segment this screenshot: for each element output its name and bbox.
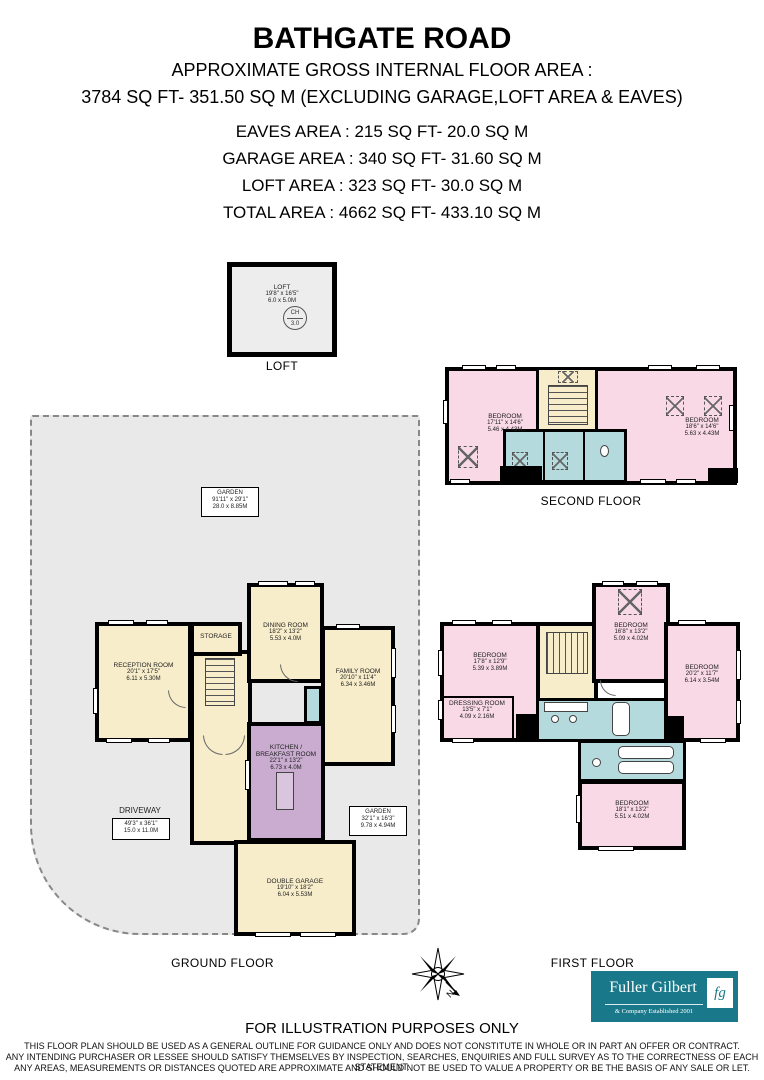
area-dims-imperial: 91'11" x 29'1" (202, 497, 258, 504)
room-dims-imperial: 13'5" x 7'1" (442, 707, 512, 714)
room-dims-metric: 6.11 x 5.30M (95, 676, 192, 683)
gf-garage-label: DOUBLE GARAGE 19'10" x 18'2" 6.04 x 5.53… (234, 878, 356, 899)
room-dims-metric: 5.46 x 4.43M (450, 427, 560, 434)
room-dims-imperial: 18'2" x 13'2" (247, 629, 324, 636)
sf-bath-partition (543, 431, 545, 481)
window (148, 738, 170, 743)
footer-heading: FOR ILLUSTRATION PURPOSES ONLY (0, 1020, 764, 1037)
window (336, 624, 360, 629)
area-dims-metric: 9.78 x 4.94M (350, 823, 406, 830)
room-name: KITCHEN / (247, 744, 325, 751)
window (678, 620, 706, 625)
floorplan-page: BATHGATE ROAD APPROXIMATE GROSS INTERNAL… (0, 0, 764, 1080)
area-dims-imperial: 49'3" x 36'1" (113, 821, 169, 828)
window (452, 620, 476, 625)
header-loft-area: LOFT AREA : 323 SQ FT- 30.0 SQ M (0, 176, 764, 196)
room-dims-metric: 5.09 x 4.02M (592, 636, 670, 643)
window (146, 620, 168, 625)
ch-value: 3.0 (284, 319, 306, 329)
room-dims-imperial: 18'1" x 13'2" (578, 807, 686, 814)
logo-monogram: fg (707, 978, 733, 1008)
footer-disclaimer-line: ANY AREAS, MEASUREMENTS OR DISTANCES QUO… (0, 1063, 764, 1073)
room-dims-metric: 5.63 x 4.43M (652, 431, 752, 438)
header-total-area: TOTAL AREA : 4662 SQ FT- 433.10 SQ M (0, 203, 764, 223)
room-name: BEDROOM (450, 413, 560, 420)
room-name: DOUBLE GARAGE (234, 878, 356, 885)
logo-divider (605, 1004, 703, 1005)
garage-door (255, 932, 291, 937)
room-name: LOFT (227, 284, 337, 291)
skylight-icon (666, 396, 684, 416)
ff-bedroom-left-label: BEDROOM 17'8" x 12'9" 5.39 x 3.89M (440, 652, 540, 673)
room-name: BEDROOM (440, 652, 540, 659)
room-name: BEDROOM (592, 622, 670, 629)
driveway-dims-label: 49'3" x 36'1" 15.0 x 11.0M (112, 818, 170, 840)
gf-reception-label: RECEPTION ROOM 20'1" x 17'5" 6.11 x 5.30… (95, 662, 192, 683)
window (258, 581, 288, 586)
header-subtitle: APPROXIMATE GROSS INTERNAL FLOOR AREA : (0, 60, 764, 81)
room-name: FAMILY ROOM (321, 668, 395, 675)
room-name: RECEPTION ROOM (95, 662, 192, 669)
window (462, 365, 486, 370)
logo-name: Fuller Gilbert (597, 979, 709, 997)
ground-floor-caption: GROUND FLOOR (150, 956, 295, 970)
loft-caption: LOFT (227, 359, 337, 373)
window (391, 648, 396, 678)
room-dims-imperial: 20'2" x 11'7" (664, 671, 740, 678)
ff-eaves-block (666, 716, 684, 738)
gf-family-label: FAMILY ROOM 20'10" x 11'4" 6.34 x 3.46M (321, 668, 395, 689)
toilet-icon (600, 445, 609, 457)
sf-bedroom-left-label: BEDROOM 17'11" x 14'6" 5.46 x 4.43M (450, 413, 560, 434)
room-name: DRESSING ROOM (442, 700, 512, 707)
window (598, 846, 634, 851)
window (391, 705, 396, 733)
window (492, 620, 512, 625)
window (700, 738, 726, 743)
room-dims-imperial: 17'8" x 12'9" (440, 659, 540, 666)
driveway-name: DRIVEWAY (100, 806, 180, 815)
window (676, 479, 696, 484)
loft-room-label: LOFT 19'8" x 16'5" 6.0 x 5.0M (227, 284, 337, 305)
sf-bedroom-right-label: BEDROOM 18'6" x 14'6" 5.63 x 4.43M (652, 417, 752, 438)
area-dims-metric: 28.0 x 8.85M (202, 504, 258, 511)
window (443, 400, 448, 424)
window (93, 688, 98, 714)
header-garage-area: GARAGE AREA : 340 SQ FT- 31.60 SQ M (0, 149, 764, 169)
room-name: DINING ROOM (247, 622, 324, 629)
window (696, 365, 720, 370)
gf-wc (304, 686, 322, 724)
toilet-icon (592, 758, 601, 767)
gf-kitchen-label: KITCHEN / BREAKFAST ROOM 22'1" x 13'2" 6… (247, 744, 325, 772)
room-dims-metric: 5.53 x 4.0M (247, 636, 324, 643)
room-dims-metric: 6.04 x 5.53M (234, 892, 356, 899)
room-name: BEDROOM (652, 417, 752, 424)
bathtub-icon (618, 761, 674, 774)
window (450, 479, 470, 484)
door-arc (600, 680, 616, 696)
sink-icon (551, 715, 559, 723)
room-dims-metric: 4.09 x 2.16M (442, 714, 512, 721)
skylight-icon (704, 396, 722, 416)
gf-storage-label: STORAGE (192, 633, 240, 640)
window (295, 581, 315, 586)
window (729, 405, 734, 431)
room-dims-metric: 5.39 x 3.89M (440, 666, 540, 673)
sf-eaves-block (500, 466, 542, 483)
header-total-gia: 3784 SQ FT- 351.50 SQ M (EXCLUDING GARAG… (0, 87, 764, 108)
window (245, 760, 250, 790)
footer-disclaimer-line: THIS FLOOR PLAN SHOULD BE USED AS A GENE… (0, 1041, 764, 1051)
window (108, 620, 134, 625)
area-name: GARDEN (350, 809, 406, 816)
room-dims-imperial: 19'8" x 16'5" (227, 291, 337, 298)
window (636, 581, 658, 586)
first-floor-caption: FIRST FLOOR (520, 956, 665, 970)
room-name: BEDROOM (578, 800, 686, 807)
window (648, 365, 672, 370)
garden-right-label: GARDEN 32'1" x 16'3" 9.78 x 4.94M (349, 806, 407, 836)
window (736, 700, 741, 724)
sf-bath-partition (583, 431, 585, 481)
gf-dining-label: DINING ROOM 18'2" x 13'2" 5.53 x 4.0M (247, 622, 324, 643)
room-name: BEDROOM (664, 664, 740, 671)
gf-stairs (205, 658, 235, 706)
window (452, 738, 474, 743)
ff-bedroom-top-label: BEDROOM 16'8" x 13'2" 5.09 x 4.02M (592, 622, 670, 643)
sf-eaves-block (708, 468, 738, 483)
logo-tagline: & Company Established 2001 (597, 1008, 711, 1015)
shower-icon (552, 452, 568, 470)
ff-dressing-label: DRESSING ROOM 13'5" x 7'1" 4.09 x 2.16M (442, 700, 512, 721)
kitchen-island-icon (276, 772, 294, 810)
agency-logo: Fuller Gilbert & Company Established 200… (591, 971, 738, 1022)
area-dims-metric: 15.0 x 11.0M (113, 828, 169, 835)
page-title: BATHGATE ROAD (0, 22, 764, 56)
skylight-icon (558, 371, 578, 383)
loft-room (227, 262, 337, 357)
garden-top-label: GARDEN 91'11" x 29'1" 28.0 x 8.85M (201, 487, 259, 517)
window (736, 650, 741, 680)
window (640, 479, 666, 484)
room-dims-imperial: 18'6" x 14'6" (652, 424, 752, 431)
sink-icon (569, 715, 577, 723)
room-dims-imperial: 20'10" x 11'4" (321, 675, 395, 682)
room-dims-metric: 5.51 x 4.02M (578, 814, 686, 821)
bathtub-icon (612, 702, 630, 736)
garage-door (300, 932, 336, 937)
skylight-icon (618, 589, 642, 615)
compass-icon: N (405, 946, 475, 1006)
room-dims-imperial: 19'10" x 18'2" (234, 885, 356, 892)
gf-family-room (321, 626, 395, 766)
ff-bedroom-right-label: BEDROOM 20'2" x 11'7" 6.14 x 3.54M (664, 664, 740, 685)
second-floor-caption: SECOND FLOOR (445, 494, 737, 508)
room-dims-metric: 6.14 x 3.54M (664, 678, 740, 685)
bathtub-icon (618, 746, 674, 759)
area-name: GARDEN (202, 490, 258, 497)
room-dims-metric: 6.34 x 3.46M (321, 682, 395, 689)
area-dims-imperial: 32'1" x 16'3" (350, 816, 406, 823)
ceiling-height-badge: CH 3.0 (283, 306, 307, 330)
room-dims-imperial: 16'8" x 13'2" (592, 629, 670, 636)
ff-bedroom-bottom-label: BEDROOM 18'1" x 13'2" 5.51 x 4.02M (578, 800, 686, 821)
ch-label: CH (287, 307, 303, 319)
window (602, 581, 624, 586)
room-dims-imperial: 22'1" x 13'2" (247, 758, 325, 765)
header-eaves-area: EAVES AREA : 215 SQ FT- 20.0 SQ M (0, 122, 764, 142)
window (106, 738, 132, 743)
room-dims-metric: 6.0 x 5.0M (227, 298, 337, 305)
ff-stairs (546, 632, 588, 674)
window (576, 795, 581, 823)
room-dims-imperial: 20'1" x 17'5" (95, 669, 192, 676)
skylight-icon (458, 446, 478, 468)
window (496, 365, 516, 370)
ff-eaves-block (516, 714, 538, 740)
room-name: BREAKFAST ROOM (247, 751, 325, 758)
room-name: STORAGE (192, 633, 240, 640)
room-dims-imperial: 17'11" x 14'6" (450, 420, 560, 427)
room-dims-metric: 6.73 x 4.0M (247, 765, 325, 772)
vanity-counter-icon (544, 702, 588, 712)
window (438, 650, 443, 676)
window (438, 700, 443, 720)
